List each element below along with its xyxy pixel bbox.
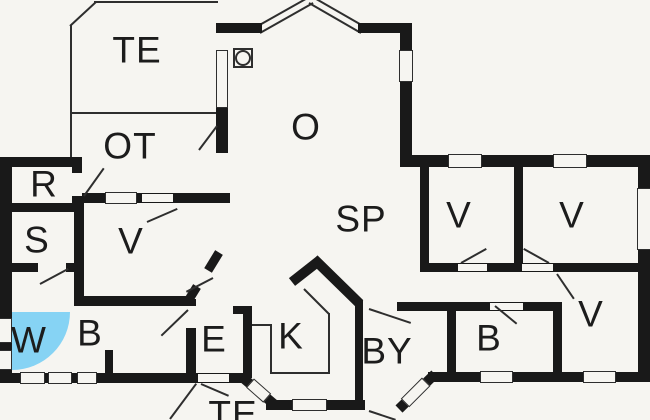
room-label-r: R (30, 166, 58, 203)
door-opening (198, 374, 229, 382)
door-opening (142, 194, 173, 202)
wall (400, 155, 650, 167)
terrace-edge (70, 112, 218, 114)
room-label-te-bottom: TE (208, 396, 257, 420)
wall (105, 350, 113, 373)
kitchen-counter (252, 324, 270, 326)
wall (420, 165, 429, 268)
wall (72, 157, 82, 173)
room-label-v-1: V (446, 197, 472, 234)
door-swing (198, 125, 218, 150)
wall (553, 302, 562, 372)
room-label-k: K (278, 318, 304, 355)
kitchen-counter (303, 288, 329, 314)
window (553, 154, 587, 168)
room-label-ot: OT (103, 128, 156, 165)
window (216, 50, 228, 108)
room-label-s: S (24, 222, 50, 259)
room-label-w: W (11, 322, 47, 359)
wall (447, 302, 456, 372)
wall (74, 203, 84, 306)
door-swing (160, 309, 188, 336)
wall (400, 82, 412, 157)
floorplan-canvas: TEOTOSPRSVWBEKBYVVVBTE (0, 0, 650, 420)
wall (397, 302, 562, 311)
wall (186, 299, 196, 306)
bay-window (309, 2, 362, 34)
door-swing (524, 248, 550, 264)
terrace-edge (70, 114, 72, 159)
wall (514, 165, 523, 268)
wall (204, 250, 223, 273)
kitchen-counter (270, 372, 330, 374)
room-label-sp: SP (335, 201, 386, 238)
room-label-v-mid: V (118, 223, 144, 260)
window (583, 371, 616, 383)
wall (74, 296, 192, 306)
window (480, 371, 513, 383)
window (20, 372, 45, 384)
wall (216, 108, 228, 153)
wall (289, 256, 323, 286)
door-opening (72, 173, 82, 196)
window (77, 372, 97, 384)
terrace-edge (169, 383, 197, 419)
room-label-v-2: V (559, 197, 585, 234)
wall (428, 372, 650, 382)
window (292, 399, 327, 411)
terrace-edge (69, 1, 96, 26)
room-label-b-left: B (77, 315, 103, 352)
room-label-v-3: V (578, 296, 604, 333)
wall (400, 23, 412, 50)
door-swing (369, 410, 397, 420)
room-label-b-right: B (476, 320, 502, 357)
kitchen-counter (328, 313, 330, 374)
window (105, 192, 137, 204)
window (637, 188, 650, 250)
door-swing (461, 248, 487, 264)
room-label-te-top: TE (112, 32, 161, 69)
door-swing (147, 208, 178, 223)
bay-window (256, 0, 312, 28)
stove-icon (235, 50, 251, 66)
terrace-edge (70, 25, 72, 113)
wall (243, 306, 252, 378)
room-label-o: O (291, 109, 321, 146)
room-label-by: BY (361, 333, 412, 370)
door-opening (522, 264, 553, 271)
room-label-e: E (201, 321, 227, 358)
wall (6, 263, 38, 272)
kitchen-counter (270, 324, 272, 374)
door-opening (458, 264, 487, 271)
door-swing (556, 273, 575, 299)
window (401, 378, 430, 407)
window (399, 50, 413, 82)
terrace-edge (94, 1, 218, 3)
window (448, 154, 482, 168)
wall (186, 328, 196, 378)
window (48, 372, 72, 384)
wall (216, 23, 262, 33)
